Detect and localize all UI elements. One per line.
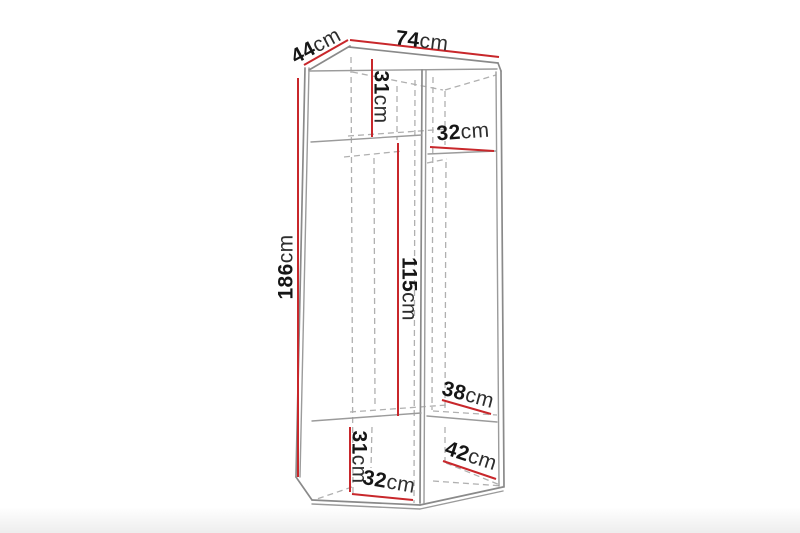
- dimension-value: 74: [394, 26, 421, 52]
- dimension-value: 31: [370, 71, 393, 95]
- dimension-label-total-height: 186cm: [276, 234, 297, 299]
- dimension-line-right-upper-shelf: [430, 147, 494, 151]
- dimension-unit: cm: [385, 470, 417, 498]
- dimension-label-right-upper-shelf: 32cm: [436, 120, 490, 145]
- dimension-value: 115: [398, 257, 421, 292]
- dimension-value: 186: [275, 263, 298, 299]
- dimension-unit: cm: [460, 119, 490, 144]
- dimension-unit: cm: [275, 234, 298, 263]
- dimension-value: 31: [348, 431, 371, 455]
- wardrobe-dimension-diagram: 44cm 74cm 31cm 32cm 186cm 115cm 38cm 31c…: [0, 0, 800, 533]
- dimension-label-middle-section: 115cm: [399, 257, 420, 321]
- dimension-value: 32: [436, 121, 462, 146]
- dimension-unit: cm: [398, 292, 421, 321]
- dimension-unit: cm: [418, 29, 449, 55]
- dimension-label-upper-section: 31cm: [371, 71, 392, 124]
- dimension-unit: cm: [370, 95, 393, 124]
